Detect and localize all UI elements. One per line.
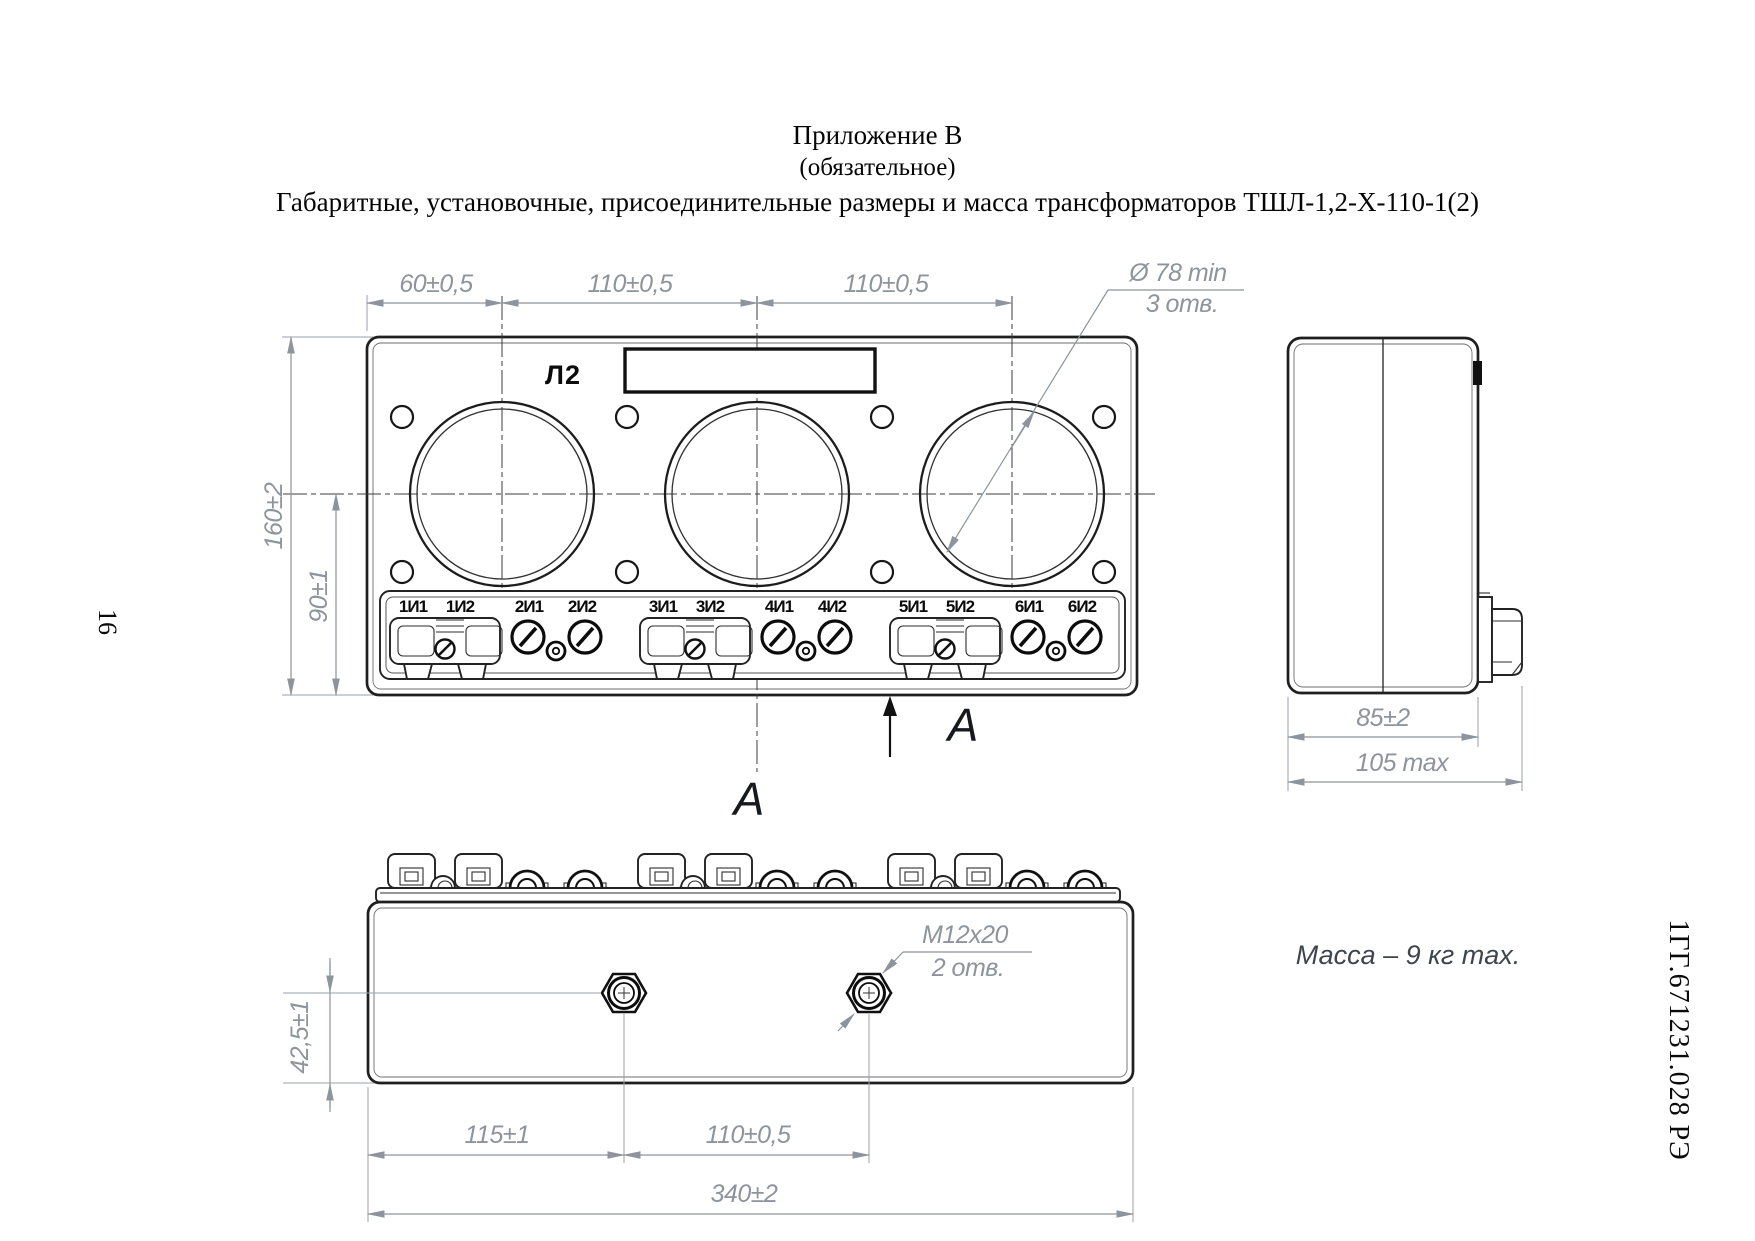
view-direction-arrow: А xyxy=(883,696,978,757)
dim-110-right: 110±0,5 xyxy=(844,270,929,298)
terminal-label: 5И1 xyxy=(899,597,928,616)
nameplate xyxy=(625,349,875,392)
dim-85: 85±2 xyxy=(1356,704,1410,732)
terminal-label: 4И2 xyxy=(818,597,847,616)
side-terminal-protrusion xyxy=(1478,593,1522,682)
side-latch xyxy=(1473,361,1482,385)
hole-count: 3 отв. xyxy=(1146,290,1219,318)
terminal-label: 6И2 xyxy=(1068,597,1097,616)
dim-110-bottom: 110±0,5 xyxy=(706,1121,791,1149)
terminal-label: 2И1 xyxy=(515,597,544,616)
bottom-connectors xyxy=(388,854,1106,888)
terminal-label: 3И2 xyxy=(696,597,725,616)
hole-diameter: Ø 78 min xyxy=(1128,259,1226,287)
bottom-view: А xyxy=(283,773,1133,1222)
terminal-strip: 1И1 1И2 2И1 2И2 3И1 3И2 4И1 4И2 5И1 5И2 … xyxy=(380,591,1125,679)
thread-count: 2 отв. xyxy=(931,954,1005,982)
front-top-dimensions: 60±0,5 110±0,5 110±0,5 xyxy=(367,270,1012,331)
dim-105: 105 max xyxy=(1356,749,1450,777)
front-left-dimensions: 160±2 90±1 xyxy=(260,337,373,695)
terminal-label: 1И1 xyxy=(399,597,428,616)
dim-42-5: 42,5±1 xyxy=(286,1000,314,1073)
terminal-label: 3И1 xyxy=(649,597,678,616)
dim-115: 115±1 xyxy=(465,1121,530,1149)
side-view: 85±2 105 max xyxy=(1288,338,1522,791)
thread-size: M12x20 xyxy=(922,921,1009,949)
view-a-label: А xyxy=(945,699,979,751)
front-view: Л2 xyxy=(260,259,1244,772)
dim-160: 160±2 xyxy=(260,482,288,549)
dim-340: 340±2 xyxy=(711,1180,778,1208)
marking-label: Л2 xyxy=(545,360,581,390)
bottom-view-label: А xyxy=(731,773,765,825)
terminal-label: 2И2 xyxy=(568,597,597,616)
mass-note: Масса – 9 кг max. xyxy=(1296,940,1520,970)
engineering-drawing: Л2 xyxy=(0,0,1755,1241)
drawing-sheet: Приложение В (обязательное) Габаритные, … xyxy=(0,0,1755,1241)
dim-60: 60±0,5 xyxy=(399,270,473,298)
terminal-label: 5И2 xyxy=(946,597,975,616)
dim-110-left: 110±0,5 xyxy=(588,270,673,298)
terminal-label: 1И2 xyxy=(446,597,475,616)
side-dimensions: 85±2 105 max xyxy=(1288,686,1522,791)
terminal-label: 6И1 xyxy=(1015,597,1044,616)
dim-90: 90±1 xyxy=(305,569,333,622)
terminal-label: 4И1 xyxy=(765,597,794,616)
